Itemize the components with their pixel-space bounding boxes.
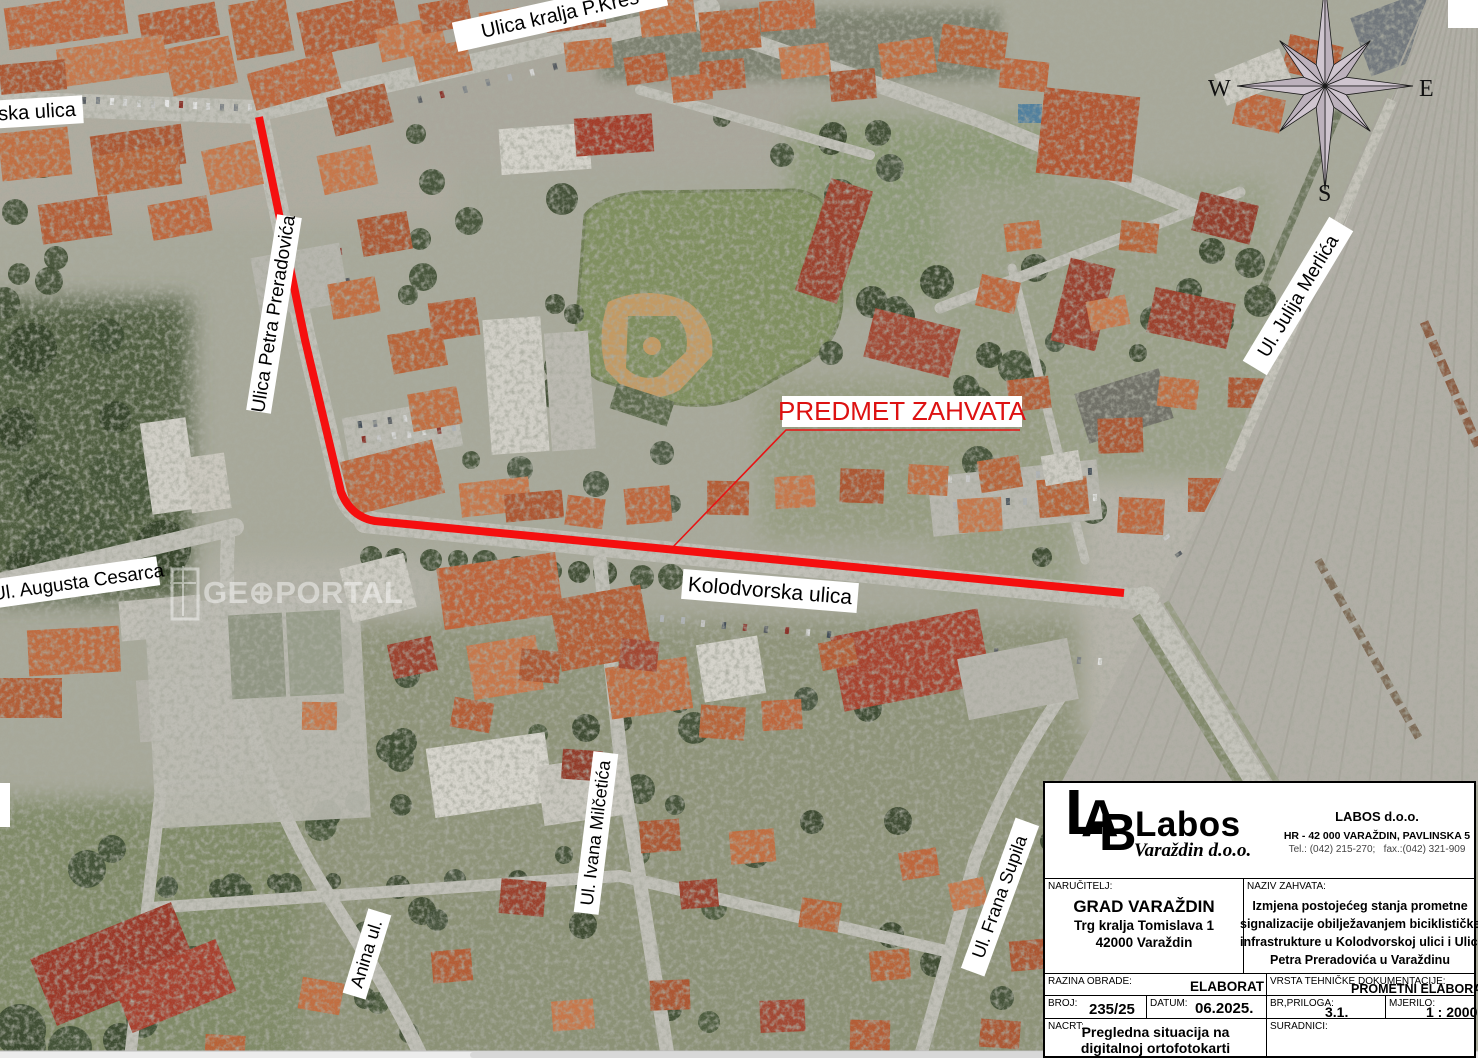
- svg-text:PREDMET ZAHVATA: PREDMET ZAHVATA: [778, 396, 1027, 426]
- svg-text:W: W: [1208, 76, 1231, 102]
- svg-text:S: S: [1318, 181, 1331, 207]
- svg-text:E: E: [1419, 76, 1434, 102]
- svg-text:GE⊕PORTAL: GE⊕PORTAL: [203, 575, 403, 610]
